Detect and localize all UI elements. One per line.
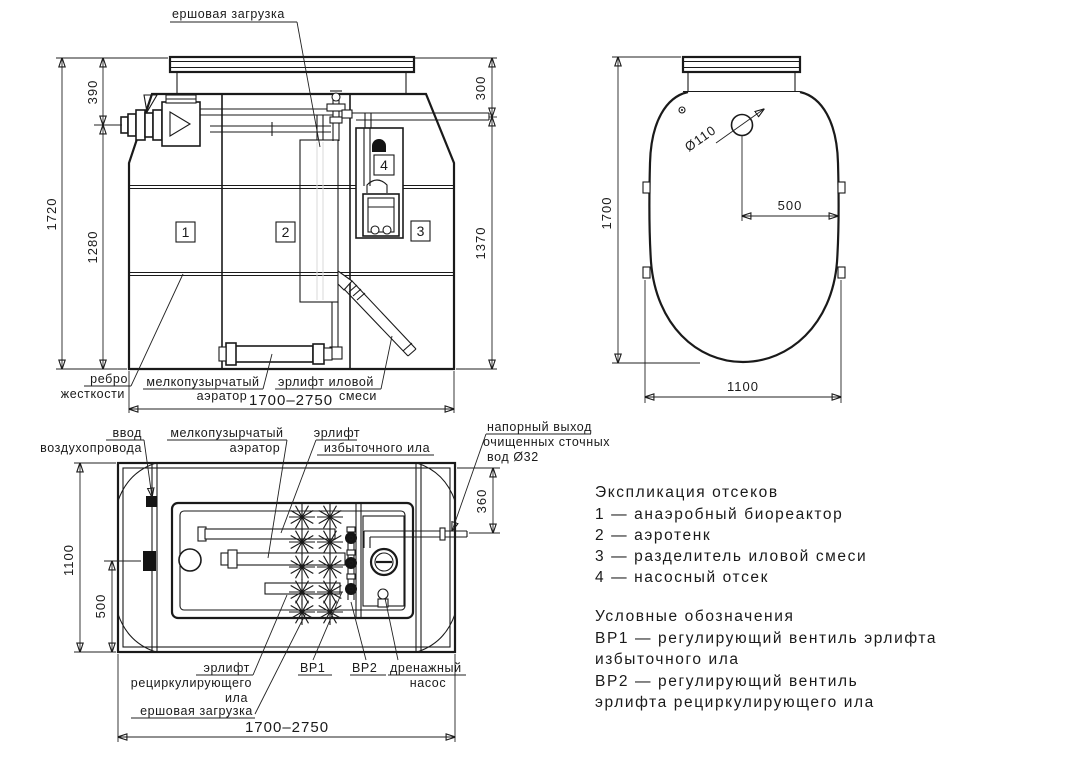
legend-item-3: 3 — разделитель иловой смеси	[595, 548, 867, 565]
compartment-1: 1	[182, 224, 190, 240]
label-valve1: ВР1	[300, 661, 325, 675]
label-brush-load: ершовая загрузка	[172, 7, 285, 21]
dim-1100-plan: 1100	[61, 544, 76, 576]
dim-1280: 1280	[85, 231, 100, 264]
compartment-2: 2	[282, 224, 290, 240]
legend-symbol-line-1: ВР1 — регулирующий вентиль эрлифта	[595, 630, 937, 647]
label-outlet-1: напорный выход	[487, 420, 592, 434]
side-view: Ø110 500 1700 1100	[599, 57, 845, 403]
side-lid	[683, 57, 800, 92]
legend-title: Экспликация отсеков	[595, 484, 779, 501]
front-lid	[170, 57, 414, 94]
dim-300: 300	[473, 76, 488, 101]
dim-1700: 1700	[599, 197, 614, 230]
compartment-4: 4	[380, 157, 388, 173]
compartment-3: 3	[417, 223, 425, 239]
air-duct-inlet-stub	[146, 496, 157, 507]
legend-item-2: 2 — аэротенк	[595, 527, 711, 544]
label-air-inlet-2: воздухопровода	[40, 441, 142, 455]
label-air-inlet-1: ввод	[112, 426, 142, 440]
legend-block: Экспликация отсеков 1 — анаэробный биоре…	[595, 484, 937, 711]
dim-360: 360	[474, 489, 489, 514]
drain-pump-circle	[378, 589, 388, 599]
label-outlet-2: очищенных сточных	[483, 435, 610, 449]
legend-item-4: 4 — насосный отсек	[595, 569, 769, 586]
dim-1370: 1370	[473, 227, 488, 260]
legend-symbol-line-4: эрлифта рециркулирующего ила	[595, 694, 875, 711]
label-outlet-3: вод Ø32	[487, 450, 539, 464]
plan-valve-column	[345, 527, 357, 600]
front-view: 1 2 3 4 1720 390 1280 300 1370 1700–2750…	[44, 7, 497, 413]
label-plan-brush-load: ершовая загрузка	[140, 704, 253, 718]
label-excess-airlift-2: избыточного ила	[324, 441, 430, 455]
legend-symbol-line-3: ВР2 — регулирующий вентиль	[595, 673, 858, 690]
label-plan-aerator-1: мелкопузырчатый	[170, 426, 283, 440]
label-sludge-airlift-1: эрлифт иловой	[278, 375, 374, 389]
legend-symbols-title: Условные обозначения	[595, 608, 794, 625]
label-recirc-airlift-1: эрлифт	[203, 661, 250, 675]
legend-item-1: 1 — анаэробный биореактор	[595, 506, 843, 523]
dim-1100-side: 1100	[727, 379, 759, 394]
septic-tank-drawing: 1 2 3 4 1720 390 1280 300 1370 1700–2750…	[0, 0, 1080, 772]
label-rib-1: ребро	[90, 372, 128, 386]
pump-compartment-unit	[356, 128, 403, 238]
dim-width-range: 1700–2750	[249, 392, 333, 409]
label-aerator-2: аэратор	[197, 389, 248, 403]
label-aerator-1: мелкопузырчатый	[146, 375, 259, 389]
technical-drawing-page: 1 2 3 4 1720 390 1280 300 1370 1700–2750…	[0, 0, 1080, 772]
label-plan-aerator-2: аэратор	[230, 441, 281, 455]
legend-symbol-line-2: избыточного ила	[595, 651, 740, 668]
dim-length-range: 1700–2750	[245, 719, 329, 736]
side-tank-outline	[649, 92, 838, 362]
label-drain-pump-2: насос	[410, 676, 446, 690]
label-valve2: ВР2	[352, 661, 377, 675]
label-recirc-airlift-3: ила	[225, 691, 248, 705]
label-recirc-airlift-2: рециркулирующего	[131, 676, 252, 690]
label-rib-2: жесткости	[61, 387, 125, 401]
dim-500-plan: 500	[93, 594, 108, 619]
label-sludge-airlift-2: смеси	[339, 389, 377, 403]
label-drain-pump-1: дренажный	[390, 661, 462, 675]
dim-1720: 1720	[44, 198, 59, 231]
plan-view: 1100 500 360 1700–2750 ввод воздухопрово…	[40, 420, 610, 742]
label-excess-airlift-1: эрлифт	[314, 426, 361, 440]
dim-500-side: 500	[778, 198, 803, 213]
left-inlet-stub	[143, 551, 156, 571]
dim-390: 390	[85, 80, 100, 105]
manhole-circle	[179, 549, 201, 571]
